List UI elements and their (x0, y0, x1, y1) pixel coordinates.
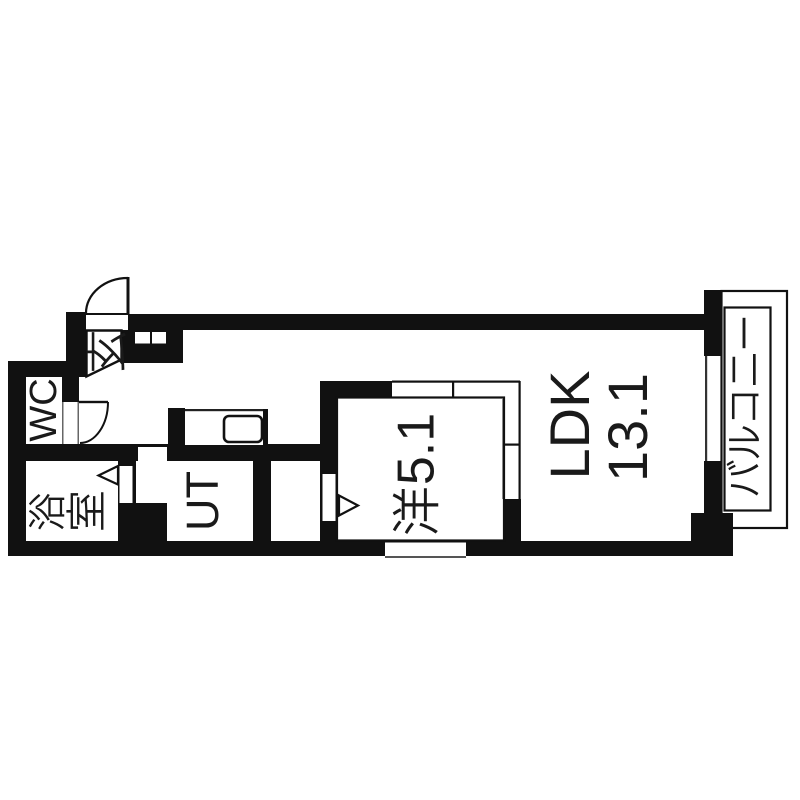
svg-text:UT: UT (177, 471, 228, 531)
svg-text:LDK: LDK (538, 371, 601, 480)
svg-text:5.1: 5.1 (388, 413, 446, 485)
svg-text:WC: WC (23, 378, 65, 441)
svg-text:13.1: 13.1 (596, 373, 659, 482)
